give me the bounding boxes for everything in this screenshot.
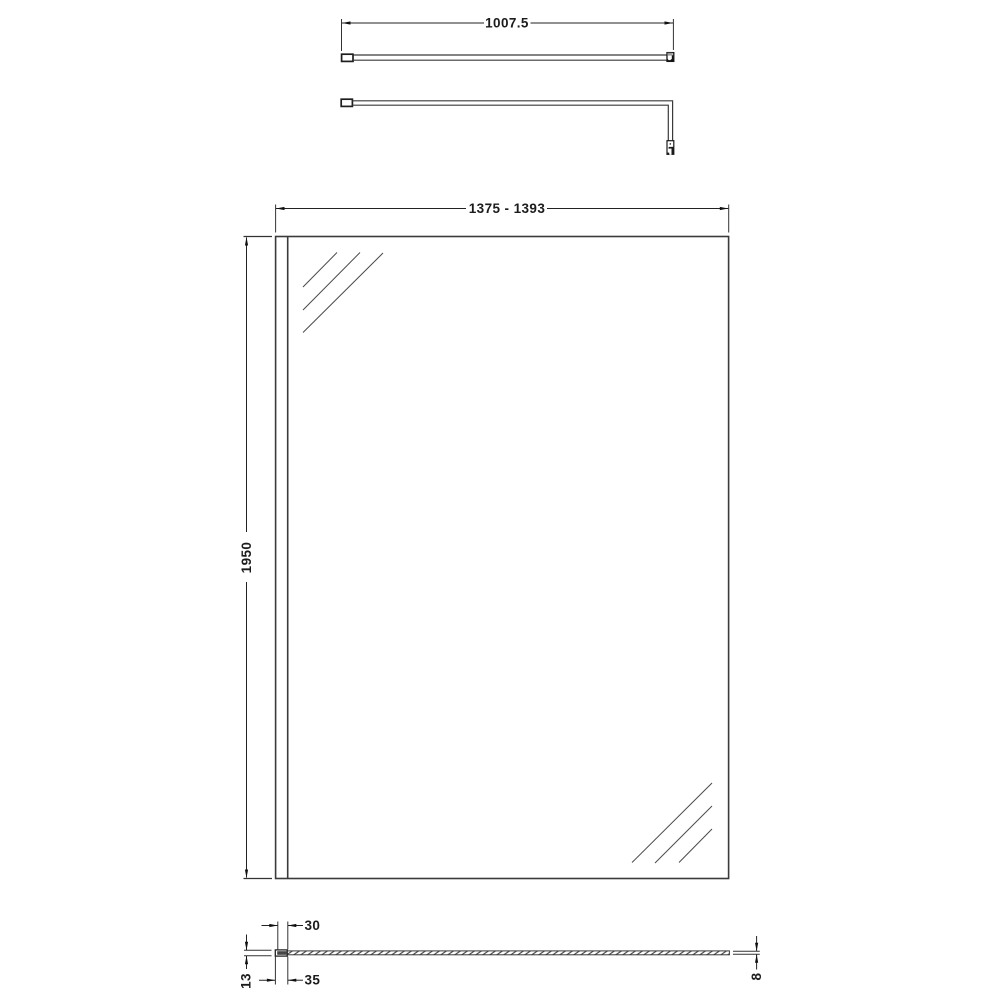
svg-text:30: 30: [305, 918, 321, 933]
svg-text:1375 - 1393: 1375 - 1393: [469, 201, 546, 216]
svg-text:8: 8: [749, 972, 764, 980]
svg-text:13: 13: [239, 973, 254, 989]
svg-text:1950: 1950: [239, 542, 254, 574]
svg-text:35: 35: [305, 973, 321, 988]
svg-text:1007.5: 1007.5: [485, 16, 529, 31]
